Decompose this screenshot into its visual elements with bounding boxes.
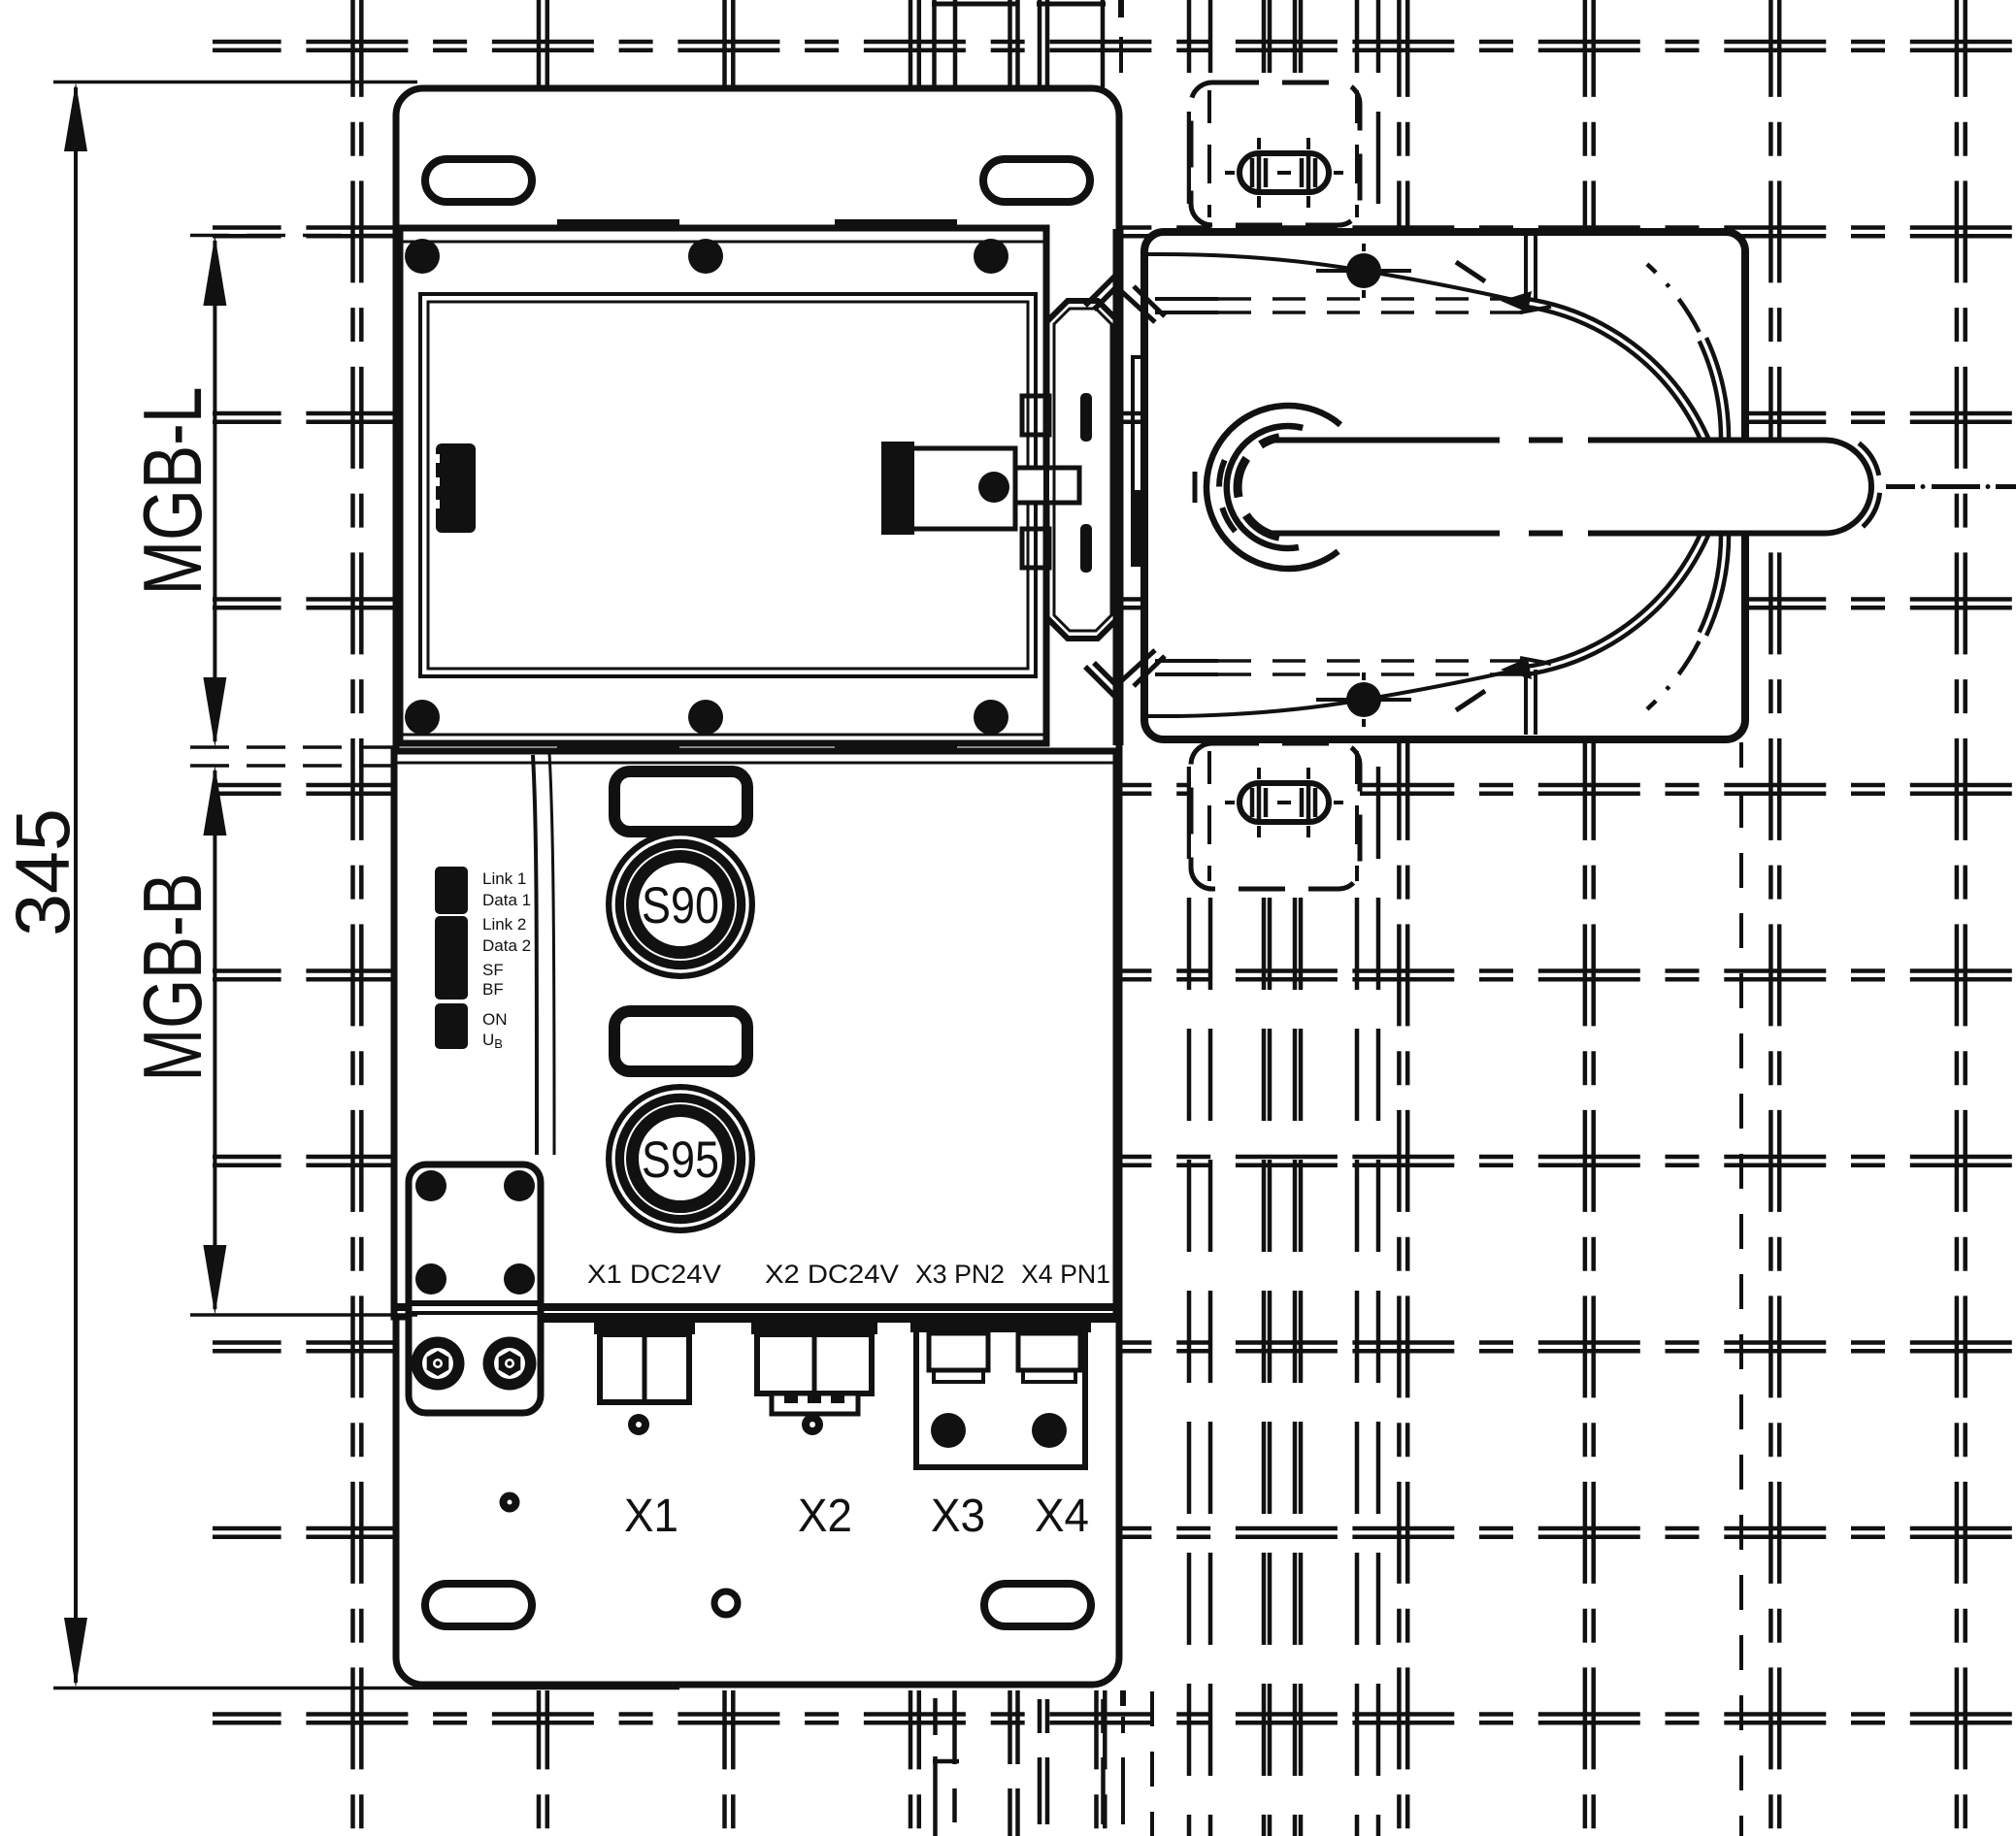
svg-text:Link 1: Link 1 [482,869,526,888]
svg-text:X1: X1 [624,1491,678,1542]
svg-text:S90: S90 [642,877,719,934]
svg-text:BF: BF [482,980,504,999]
svg-text:X4: X4 [1035,1491,1089,1542]
svg-text:X1 DC24V: X1 DC24V [587,1260,721,1289]
svg-text:X3 PN2: X3 PN2 [915,1260,1005,1289]
svg-text:Link 2: Link 2 [482,915,526,934]
svg-text:Data 1: Data 1 [482,891,531,909]
svg-text:MGB-L: MGB-L [127,387,219,596]
svg-text:MGB-B: MGB-B [127,873,219,1082]
svg-text:X4 PN1: X4 PN1 [1021,1260,1110,1289]
svg-text:Data 2: Data 2 [482,936,531,955]
svg-text:X3: X3 [931,1491,985,1542]
svg-text:S95: S95 [642,1131,719,1189]
svg-text:ON: ON [482,1010,508,1029]
svg-text:345: 345 [0,808,85,936]
svg-text:X2: X2 [798,1491,852,1542]
svg-text:X2 DC24V: X2 DC24V [765,1260,899,1289]
svg-text:SF: SF [482,961,504,979]
